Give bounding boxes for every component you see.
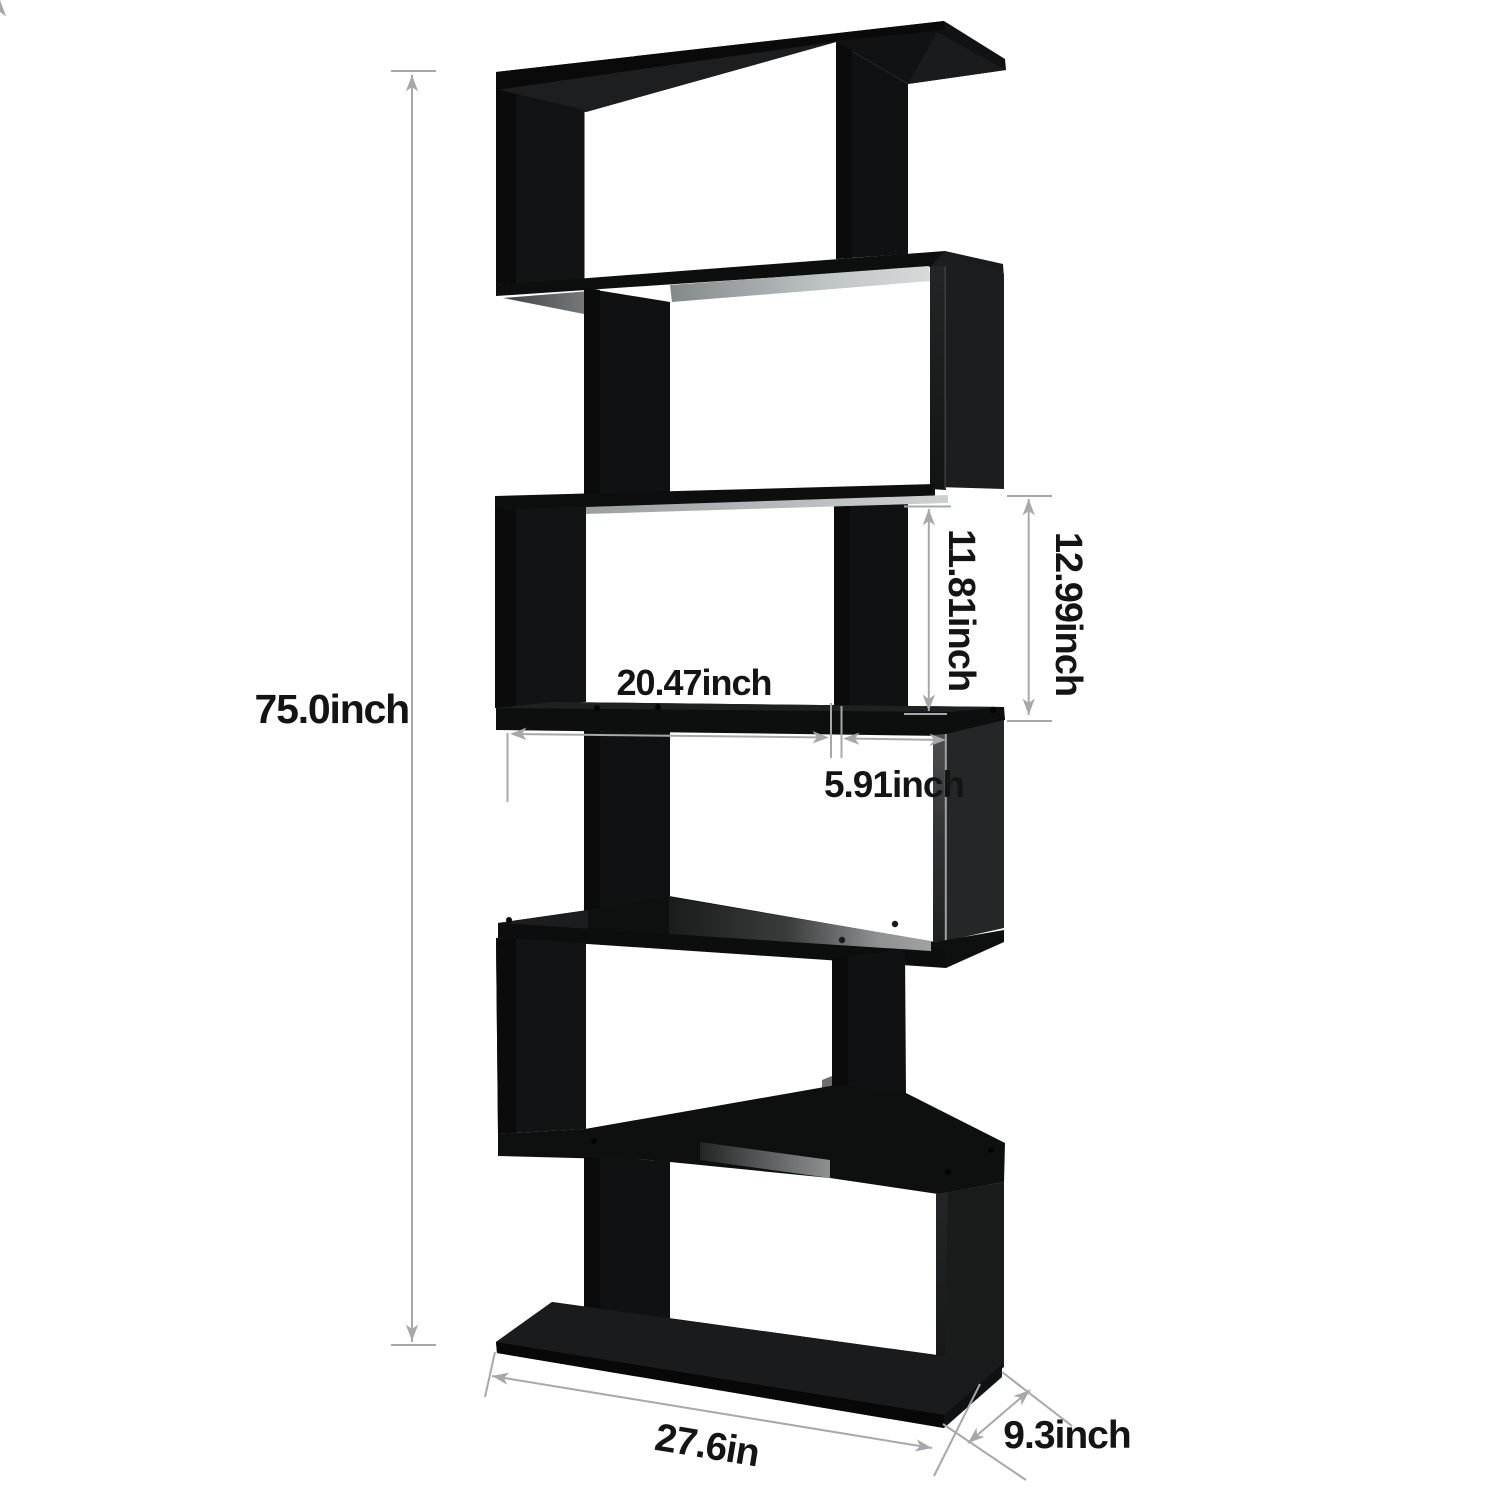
svg-text:5.91inch: 5.91inch <box>824 764 964 805</box>
svg-text:75.0inch: 75.0inch <box>255 686 409 732</box>
svg-text:20.47inch: 20.47inch <box>616 662 771 703</box>
svg-text:11.81inch: 11.81inch <box>940 529 982 691</box>
svg-text:9.3inch: 9.3inch <box>1003 1414 1130 1457</box>
svg-text:12.99inch: 12.99inch <box>1047 532 1089 696</box>
